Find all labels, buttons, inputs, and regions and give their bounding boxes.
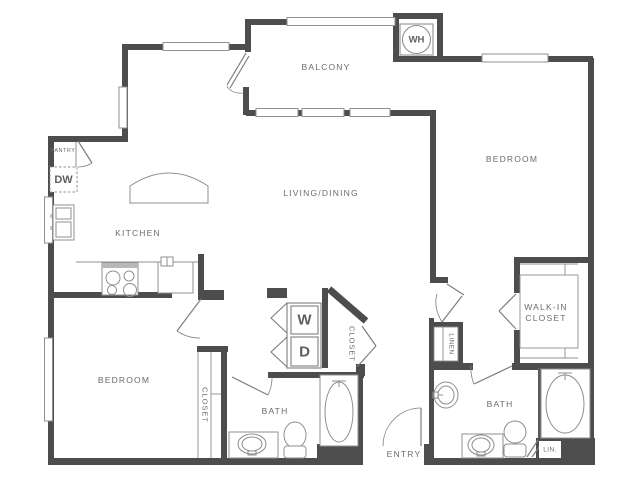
wall-segment [221, 346, 227, 458]
balcony-label: BALCONY [301, 62, 350, 72]
wall-segment [430, 110, 436, 278]
window [350, 109, 390, 117]
wall-segment [393, 56, 443, 62]
bathtub-icon [320, 375, 358, 446]
walk-in-closet-door [499, 294, 516, 329]
bath-left-door [232, 377, 272, 395]
wall-segment [429, 322, 463, 327]
pantry-label: PANTRY [51, 148, 76, 154]
water-heater-label: WH [409, 35, 425, 46]
toilet-icon [284, 422, 306, 458]
bedroom-left-door [177, 299, 201, 338]
wall-segment [317, 444, 363, 465]
wall-segment [514, 330, 520, 370]
entry-label: ENTRY [387, 449, 422, 459]
window [287, 18, 395, 26]
wall-segment [322, 288, 328, 368]
wall-segment [388, 110, 435, 116]
pantry-door [78, 141, 92, 167]
wall-segment [430, 277, 448, 283]
vanity-sink-icon [462, 434, 503, 458]
bedroom-left-label: BEDROOM [98, 375, 150, 385]
window [163, 43, 229, 51]
linen-small-label: LIN. [543, 447, 557, 454]
bedroom-right-label: BEDROOM [486, 154, 538, 164]
window [256, 109, 298, 117]
wall-segment [458, 322, 463, 366]
bath-right-label: BATH [487, 399, 514, 409]
washer-label: W [297, 312, 312, 329]
wall-segment [429, 363, 473, 370]
wall-segment [514, 257, 593, 263]
hall-closet-door [357, 326, 376, 367]
wall-segment [267, 288, 287, 298]
bathtub-icon [541, 369, 590, 438]
wall-segment [247, 19, 289, 25]
dishwasher-label: DW [54, 174, 73, 186]
window [45, 338, 53, 421]
wall-segment [429, 318, 434, 458]
wall-segment [393, 13, 443, 19]
closet-bedroom-left-label: CLOSET [201, 387, 210, 423]
entry-door [383, 408, 421, 446]
wall-segment [198, 290, 224, 300]
kitchen-label: KITCHEN [115, 228, 161, 238]
window [45, 197, 53, 243]
kitchen-fixtures [50, 142, 208, 297]
bath-right-door [471, 365, 512, 384]
bath-left-fixtures [229, 375, 358, 458]
island-counter [130, 173, 208, 203]
floorplan-drawing: BALCONY LIVING/DINING KITCHEN BEDROOM BE… [0, 0, 640, 480]
closet-hall-label: CLOSET [348, 326, 357, 362]
stove-icon [102, 263, 138, 297]
window [302, 109, 344, 117]
wall-segment [48, 458, 362, 465]
kitchen-sink-icon [158, 257, 193, 293]
window [119, 87, 127, 128]
wall-segment-angled [329, 289, 366, 321]
dryer-label: D [299, 344, 310, 361]
labels: BALCONY LIVING/DINING KITCHEN BEDROOM BE… [51, 35, 568, 460]
bath-left-label: BATH [262, 406, 289, 416]
bedroom-right-hall-door [436, 284, 464, 322]
floorplan: BALCONY LIVING/DINING KITCHEN BEDROOM BE… [0, 0, 640, 480]
toilet-icon [504, 421, 526, 457]
wall-segment [437, 13, 443, 62]
washer-dryer-stack [271, 303, 321, 368]
wall-sink-icon [433, 382, 458, 408]
walk-in-closet-label-line2: CLOSET [525, 313, 566, 323]
wall-segment [514, 257, 520, 293]
refrigerator-icon [51, 205, 74, 240]
wall-segment [48, 136, 128, 142]
window [482, 54, 548, 62]
living-dining-label: LIVING/DINING [283, 188, 359, 198]
vanity-sink-icon [229, 432, 278, 458]
wall-segment [424, 458, 541, 465]
wall-segment [358, 378, 363, 448]
linen-label: LINEN [448, 333, 455, 354]
walk-in-closet-label-line1: WALK-IN [524, 302, 568, 312]
wall-segment [198, 254, 204, 295]
